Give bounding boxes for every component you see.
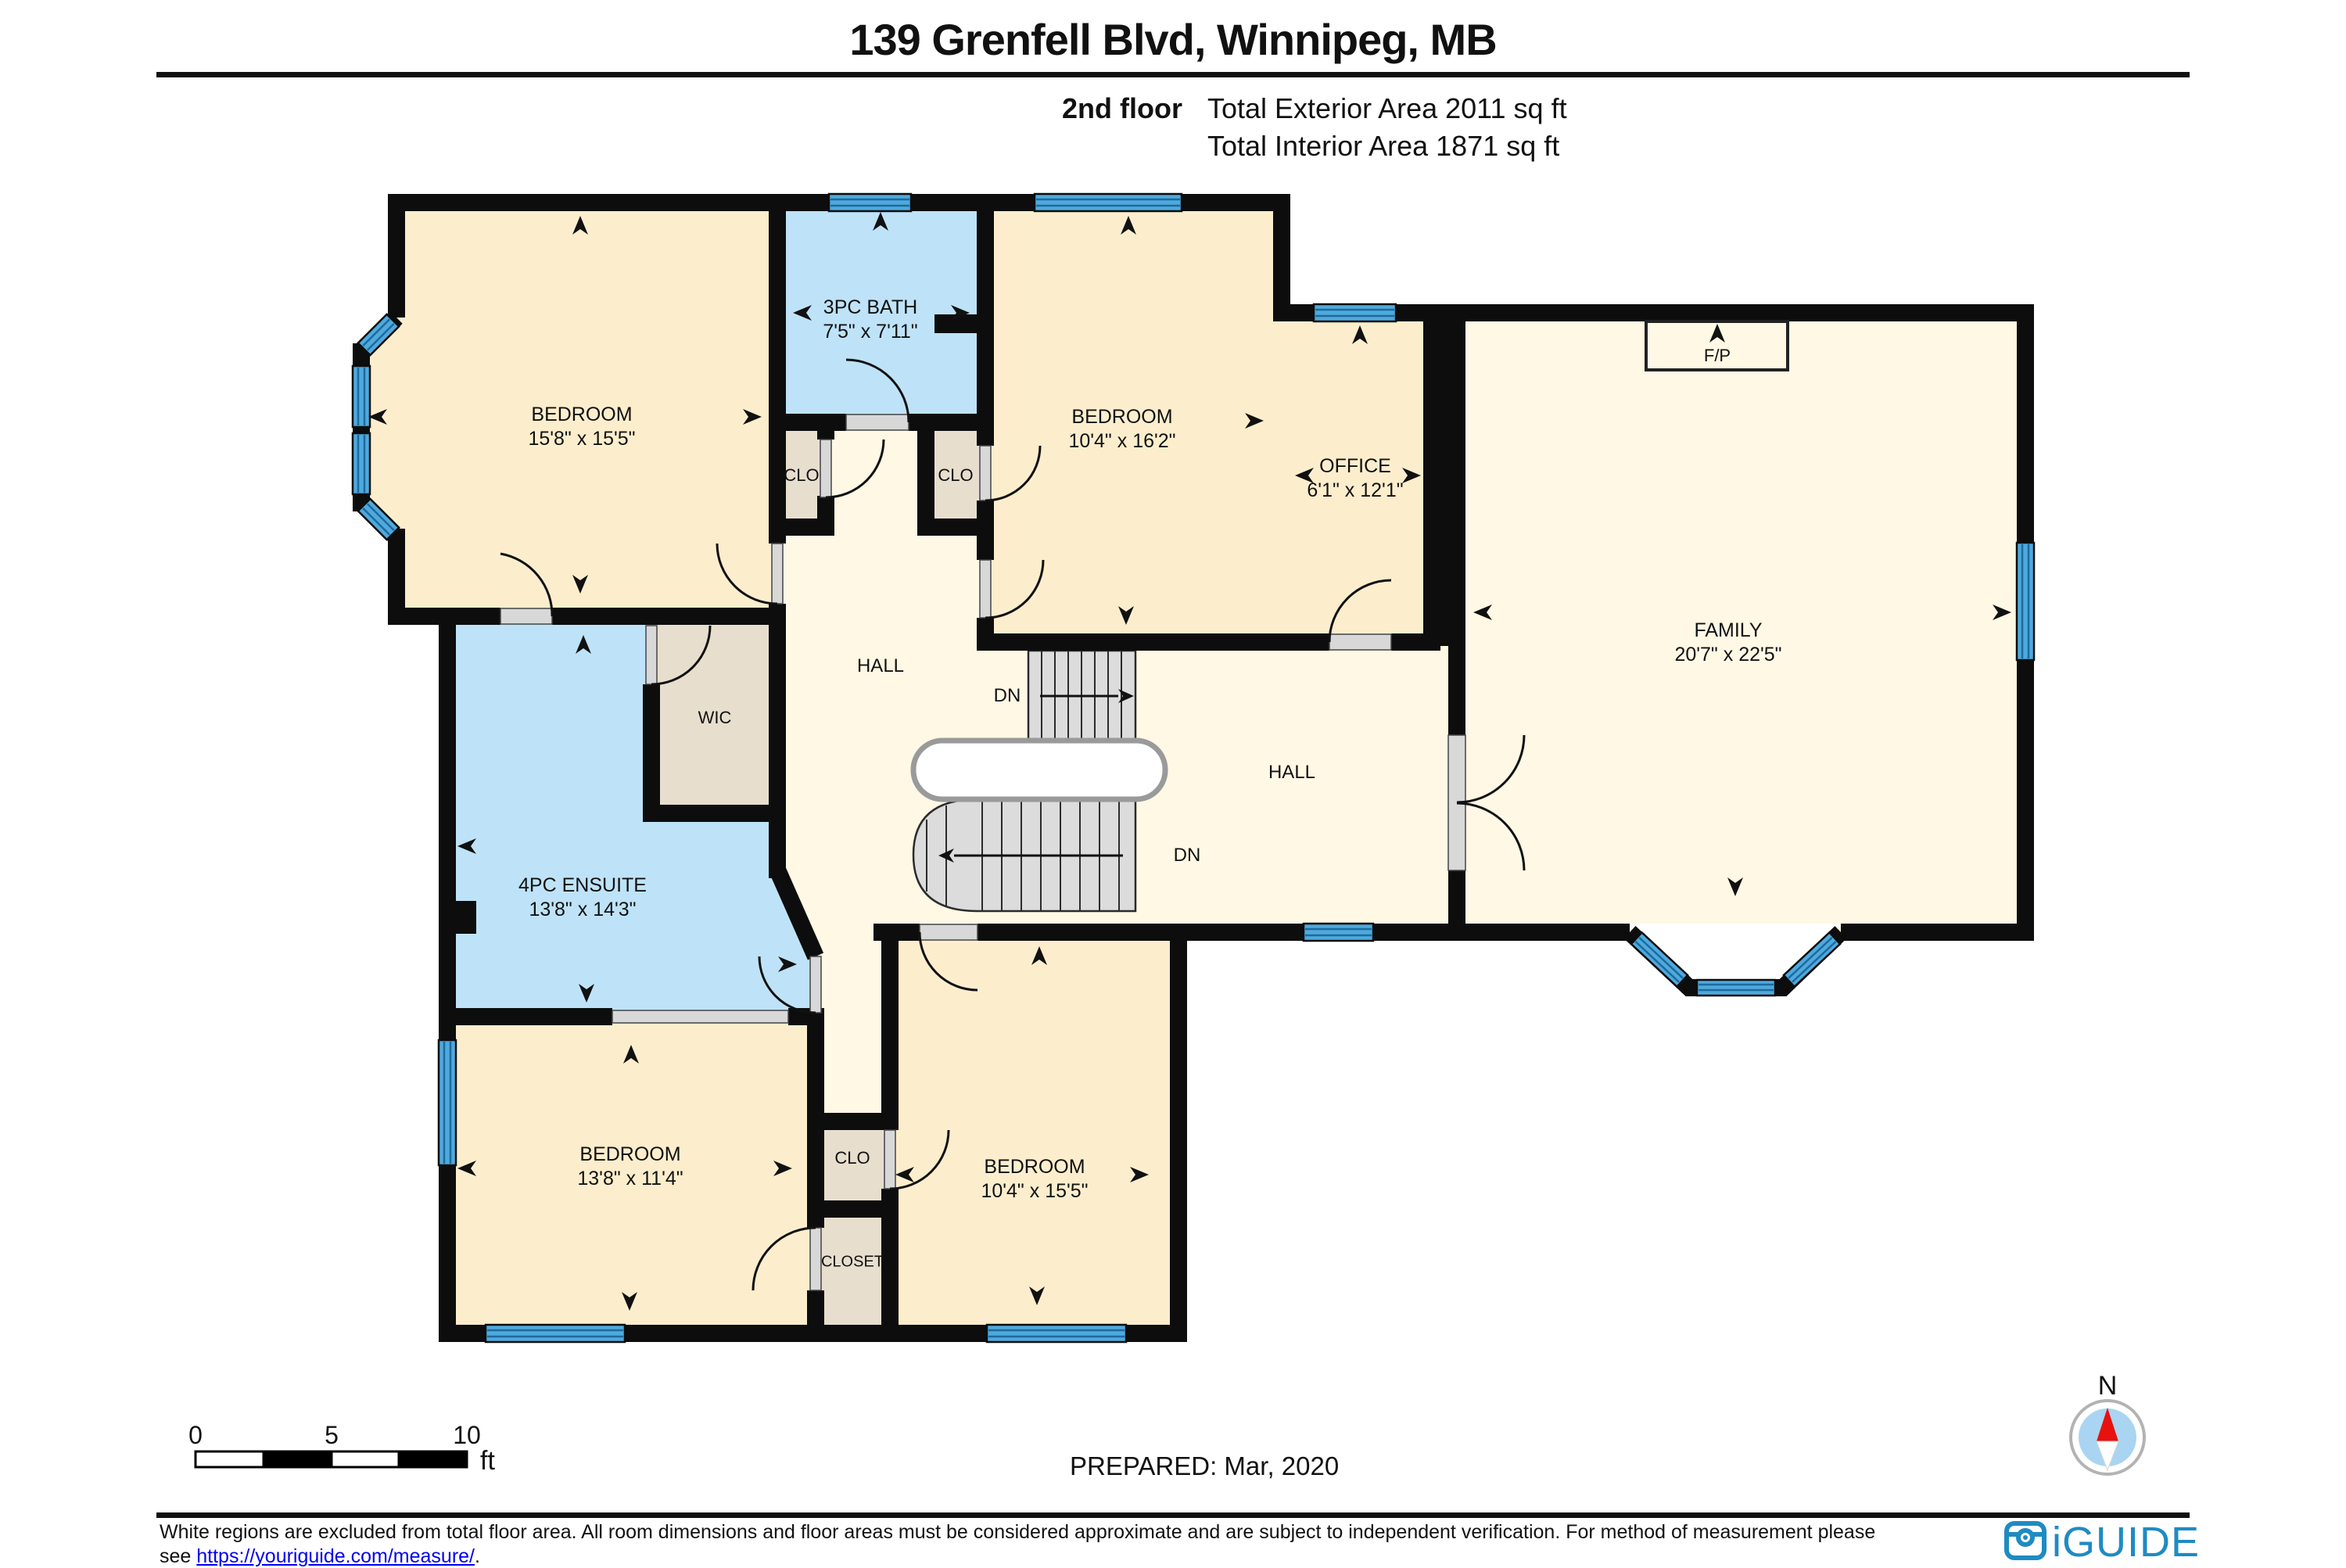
prepared-date: PREPARED: Mar, 2020 xyxy=(1070,1451,1339,1481)
bedroom4-floor xyxy=(890,932,1178,1342)
room-dims: 20'7" x 22'5" xyxy=(1674,643,1781,667)
room-name: BEDROOM xyxy=(981,1155,1088,1179)
room-dims: 10'4" x 15'5" xyxy=(981,1179,1088,1204)
scale-bar: 0 5 10 ft xyxy=(188,1421,495,1476)
closet-floor xyxy=(816,1209,890,1333)
scale-zero: 0 xyxy=(188,1421,203,1449)
clo-bottom-label: CLO xyxy=(834,1148,870,1168)
down-label-lower: DN xyxy=(1174,845,1201,867)
bedroom1-label: BEDROOM 15'8" x 15'5" xyxy=(528,403,635,451)
closet-label: CLOSET xyxy=(821,1254,884,1272)
window xyxy=(2017,543,2034,660)
compass: N xyxy=(2071,1371,2144,1474)
clo-right-label: CLO xyxy=(938,465,973,486)
bedroom2-label: BEDROOM 10'4" x 16'2" xyxy=(1068,405,1175,454)
room-dims: 13'8" x 11'4" xyxy=(577,1167,683,1191)
bay-window xyxy=(353,433,370,494)
disclaimer-line1: White regions are excluded from total fl… xyxy=(160,1521,1875,1544)
room-name: BEDROOM xyxy=(1068,405,1175,429)
window xyxy=(486,1325,625,1342)
scale-unit: ft xyxy=(480,1446,495,1476)
iguide-logo-text: iGUIDE xyxy=(2052,1518,2200,1566)
room-dims: 13'8" x 14'3" xyxy=(518,898,647,922)
bay-window xyxy=(353,366,370,427)
floor-plan: 0 5 10 ft N xyxy=(0,0,2346,1564)
window xyxy=(1314,304,1396,321)
window xyxy=(1035,194,1182,211)
window xyxy=(1304,924,1373,941)
scale-ten: 10 xyxy=(453,1421,481,1449)
bath-label: 3PC BATH 7'5" x 7'11" xyxy=(823,296,917,344)
room-name: FAMILY xyxy=(1674,619,1781,643)
fireplace-label: F/P xyxy=(1704,346,1731,366)
bay-window xyxy=(1697,980,1775,996)
room-name: OFFICE xyxy=(1307,454,1403,479)
room-dims: 10'4" x 16'2" xyxy=(1068,429,1175,454)
room-name: 4PC ENSUITE xyxy=(518,874,647,898)
wic-label: WIC xyxy=(698,708,732,728)
bedroom4-label: BEDROOM 10'4" x 15'5" xyxy=(981,1155,1088,1204)
stairwell-void xyxy=(913,741,1165,799)
bath-partition-stub xyxy=(934,314,994,333)
ensuite-opening xyxy=(612,1010,788,1023)
floorplan-page: { "header": { "title": "139 Grenfell Blv… xyxy=(0,0,2346,1564)
down-label-upper: DN xyxy=(994,685,1021,707)
window xyxy=(829,194,911,211)
hall-right-label: HALL xyxy=(1268,762,1315,784)
room-dims: 6'1" x 12'1" xyxy=(1307,479,1403,503)
room-name: BEDROOM xyxy=(528,403,635,427)
disclaimer-line2: see https://youriguide.com/measure/. xyxy=(160,1545,480,1568)
room-name: 3PC BATH xyxy=(823,296,917,320)
window xyxy=(439,1040,456,1165)
ensuite-label: 4PC ENSUITE 13'8" x 14'3" xyxy=(518,874,647,922)
ensuite-wall-notch xyxy=(439,901,476,934)
compass-north-label: N xyxy=(2098,1371,2118,1401)
footer-divider xyxy=(156,1512,2190,1518)
hall-left-label: HALL xyxy=(857,655,904,677)
iguide-logo-icon xyxy=(2003,1520,2047,1561)
room-dims: 15'8" x 15'5" xyxy=(528,427,635,451)
office-label: OFFICE 6'1" x 12'1" xyxy=(1307,454,1403,503)
bedroom3-label: BEDROOM 13'8" x 11'4" xyxy=(577,1143,683,1191)
scale-five: 5 xyxy=(325,1421,339,1449)
room-name: BEDROOM xyxy=(577,1143,683,1167)
room-dims: 7'5" x 7'11" xyxy=(823,320,917,344)
clo-left-label: CLO xyxy=(784,465,819,486)
family-label: FAMILY 20'7" x 22'5" xyxy=(1674,619,1781,667)
window xyxy=(987,1325,1126,1342)
